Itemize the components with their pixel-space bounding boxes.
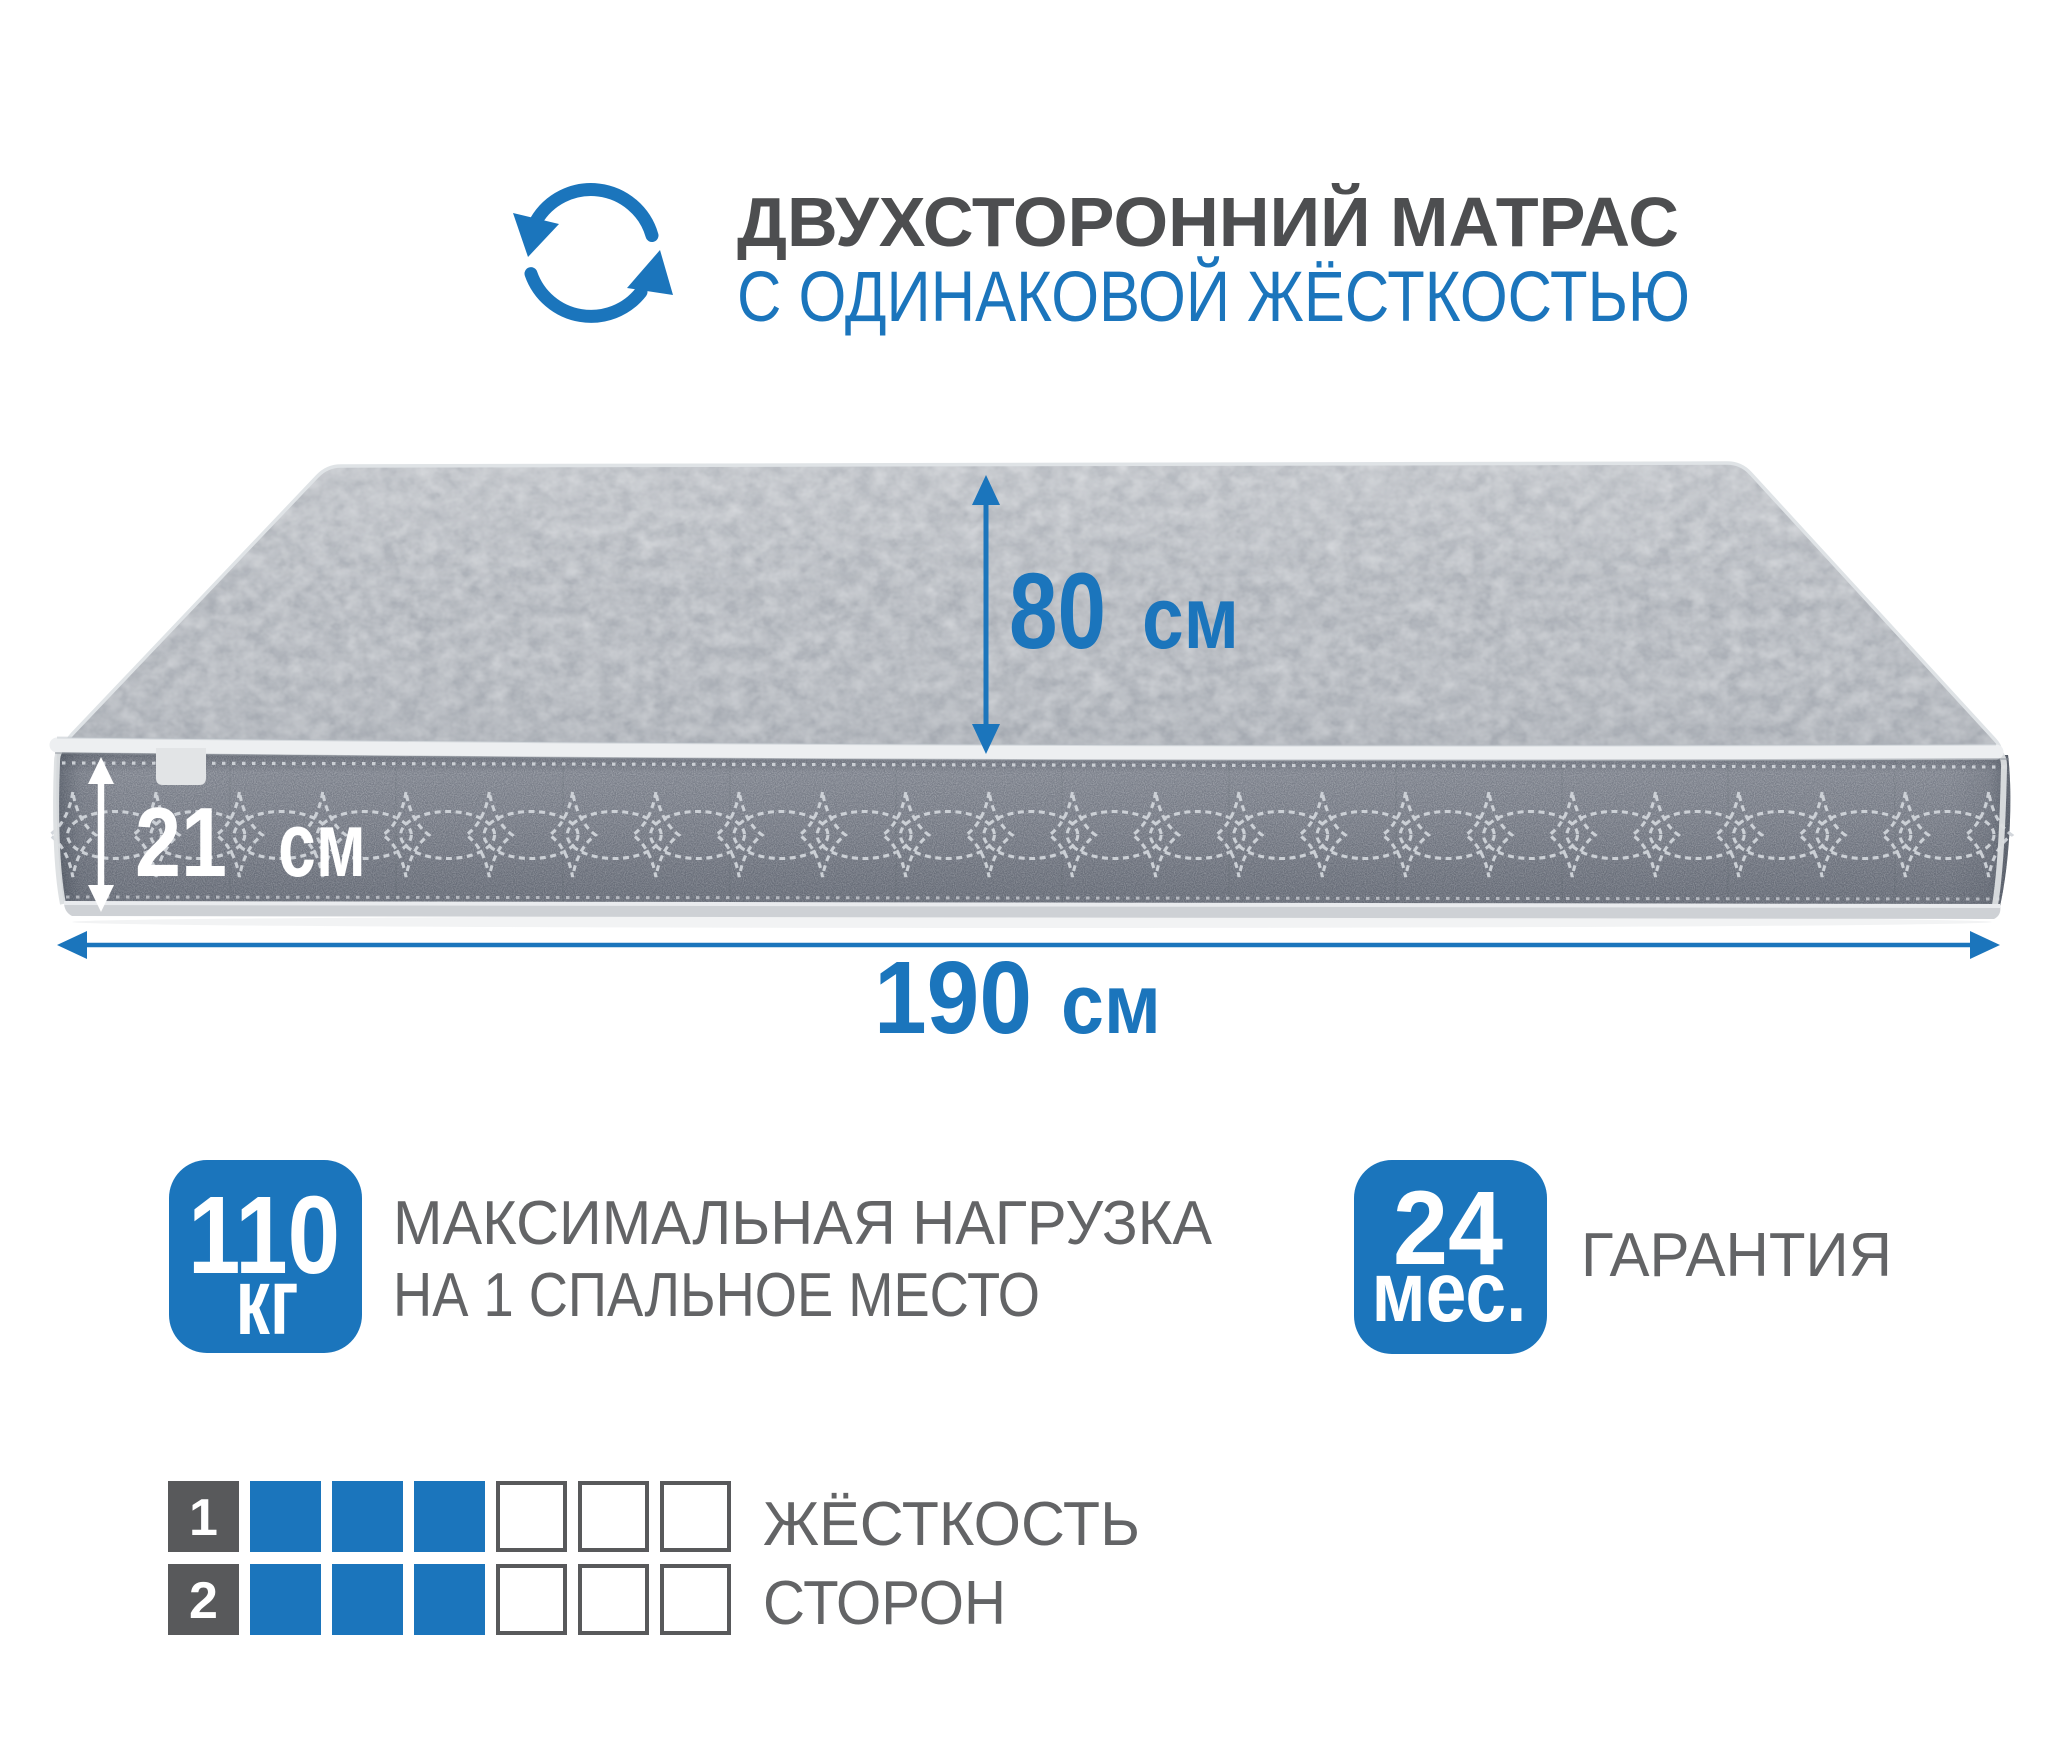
svg-text:кг: кг (236, 1249, 299, 1355)
svg-text:1: 1 (189, 1489, 218, 1547)
svg-text:190: 190 (874, 940, 1032, 1055)
svg-text:2: 2 (189, 1572, 218, 1630)
svg-text:см: см (278, 794, 366, 896)
svg-text:мес.: мес. (1372, 1245, 1527, 1340)
svg-text:ДВУХСТОРОННИЙ МАТРАС: ДВУХСТОРОННИЙ МАТРАС (737, 182, 1679, 261)
svg-text:см: см (1061, 957, 1161, 1051)
svg-text:НА 1 СПАЛЬНОЕ МЕСТО: НА 1 СПАЛЬНОЕ МЕСТО (393, 1261, 1040, 1330)
svg-text:СТОРОН: СТОРОН (763, 1569, 1006, 1638)
svg-text:МАКСИМАЛЬНАЯ НАГРУЗКА: МАКСИМАЛЬНАЯ НАГРУЗКА (393, 1189, 1213, 1258)
svg-text:21: 21 (135, 787, 227, 897)
svg-text:ЖЁСТКОСТЬ: ЖЁСТКОСТЬ (763, 1490, 1140, 1559)
svg-text:см: см (1142, 568, 1239, 667)
svg-text:С ОДИНАКОВОЙ ЖЁСТКОСТЬЮ: С ОДИНАКОВОЙ ЖЁСТКОСТЬЮ (737, 257, 1690, 337)
svg-text:80: 80 (1009, 550, 1106, 671)
svg-text:ГАРАНТИЯ: ГАРАНТИЯ (1581, 1221, 1892, 1290)
